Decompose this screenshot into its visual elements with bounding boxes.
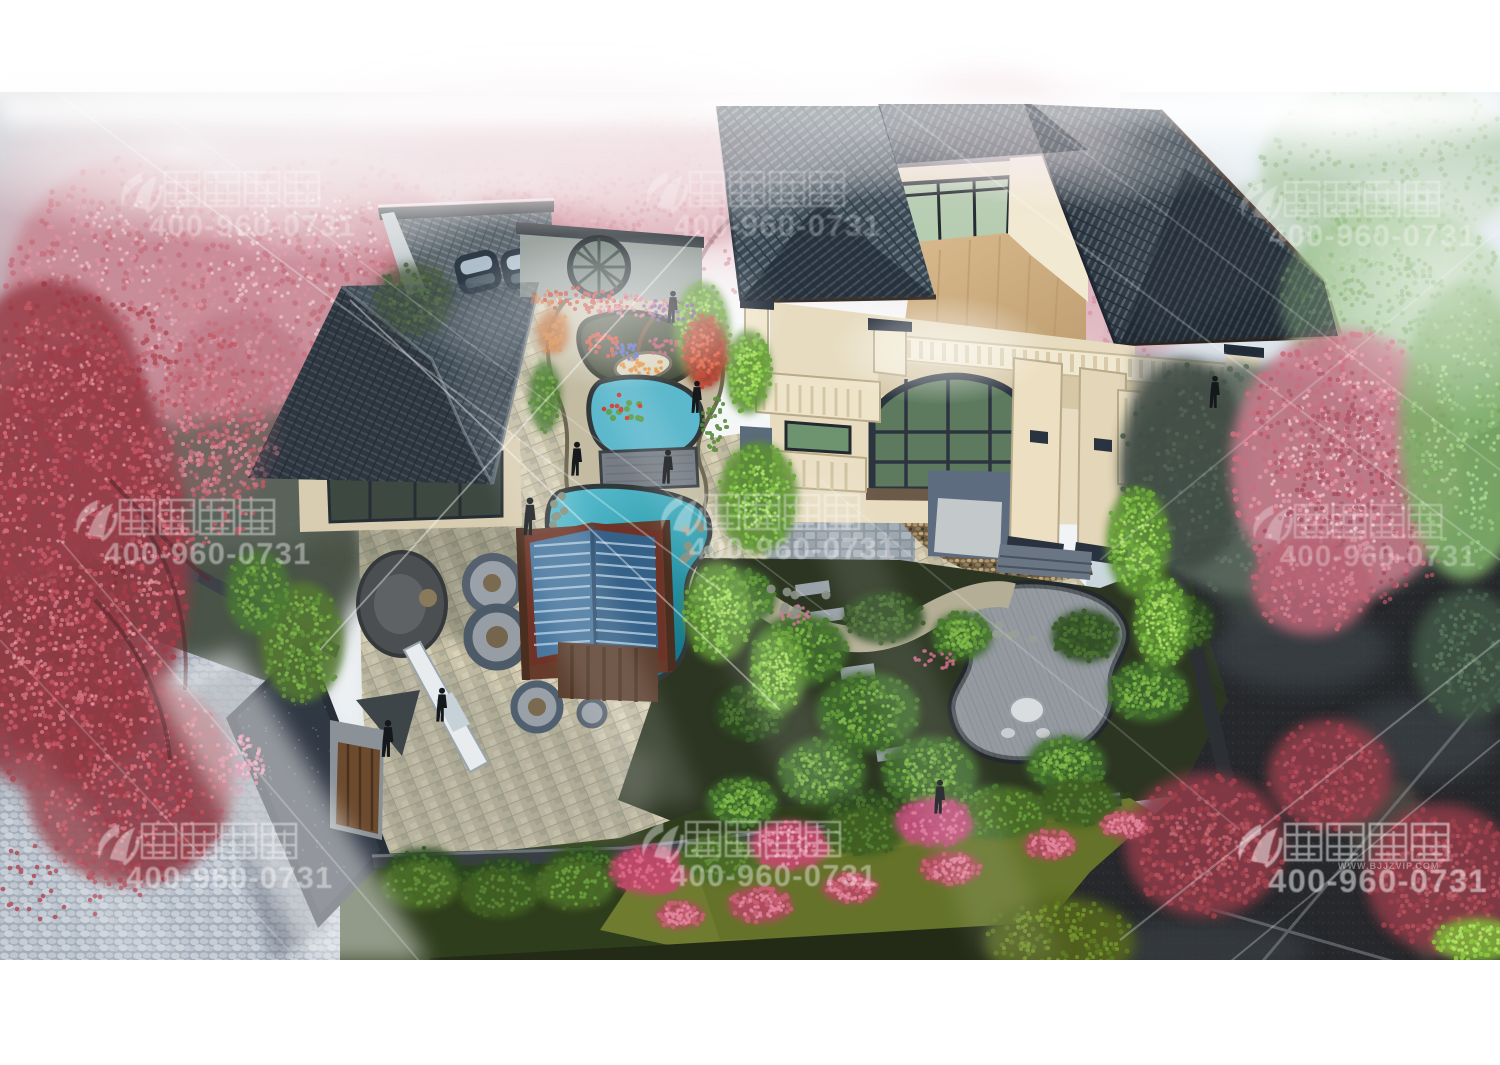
svg-text:400-960-0731: 400-960-0731 [149,208,356,243]
svg-text:400-960-0731: 400-960-0731 [1280,540,1477,573]
svg-text:400-960-0731: 400-960-0731 [689,531,896,566]
svg-text:400-960-0731: 400-960-0731 [1269,218,1476,253]
svg-text:400-960-0731: 400-960-0731 [126,860,333,895]
svg-text:WWW.BJJZVIP.COM: WWW.BJJZVIP.COM [1338,861,1439,871]
svg-text:400-960-0731: 400-960-0731 [104,536,311,571]
svg-text:400-960-0731: 400-960-0731 [670,858,877,893]
svg-text:400-960-0731: 400-960-0731 [674,208,881,243]
